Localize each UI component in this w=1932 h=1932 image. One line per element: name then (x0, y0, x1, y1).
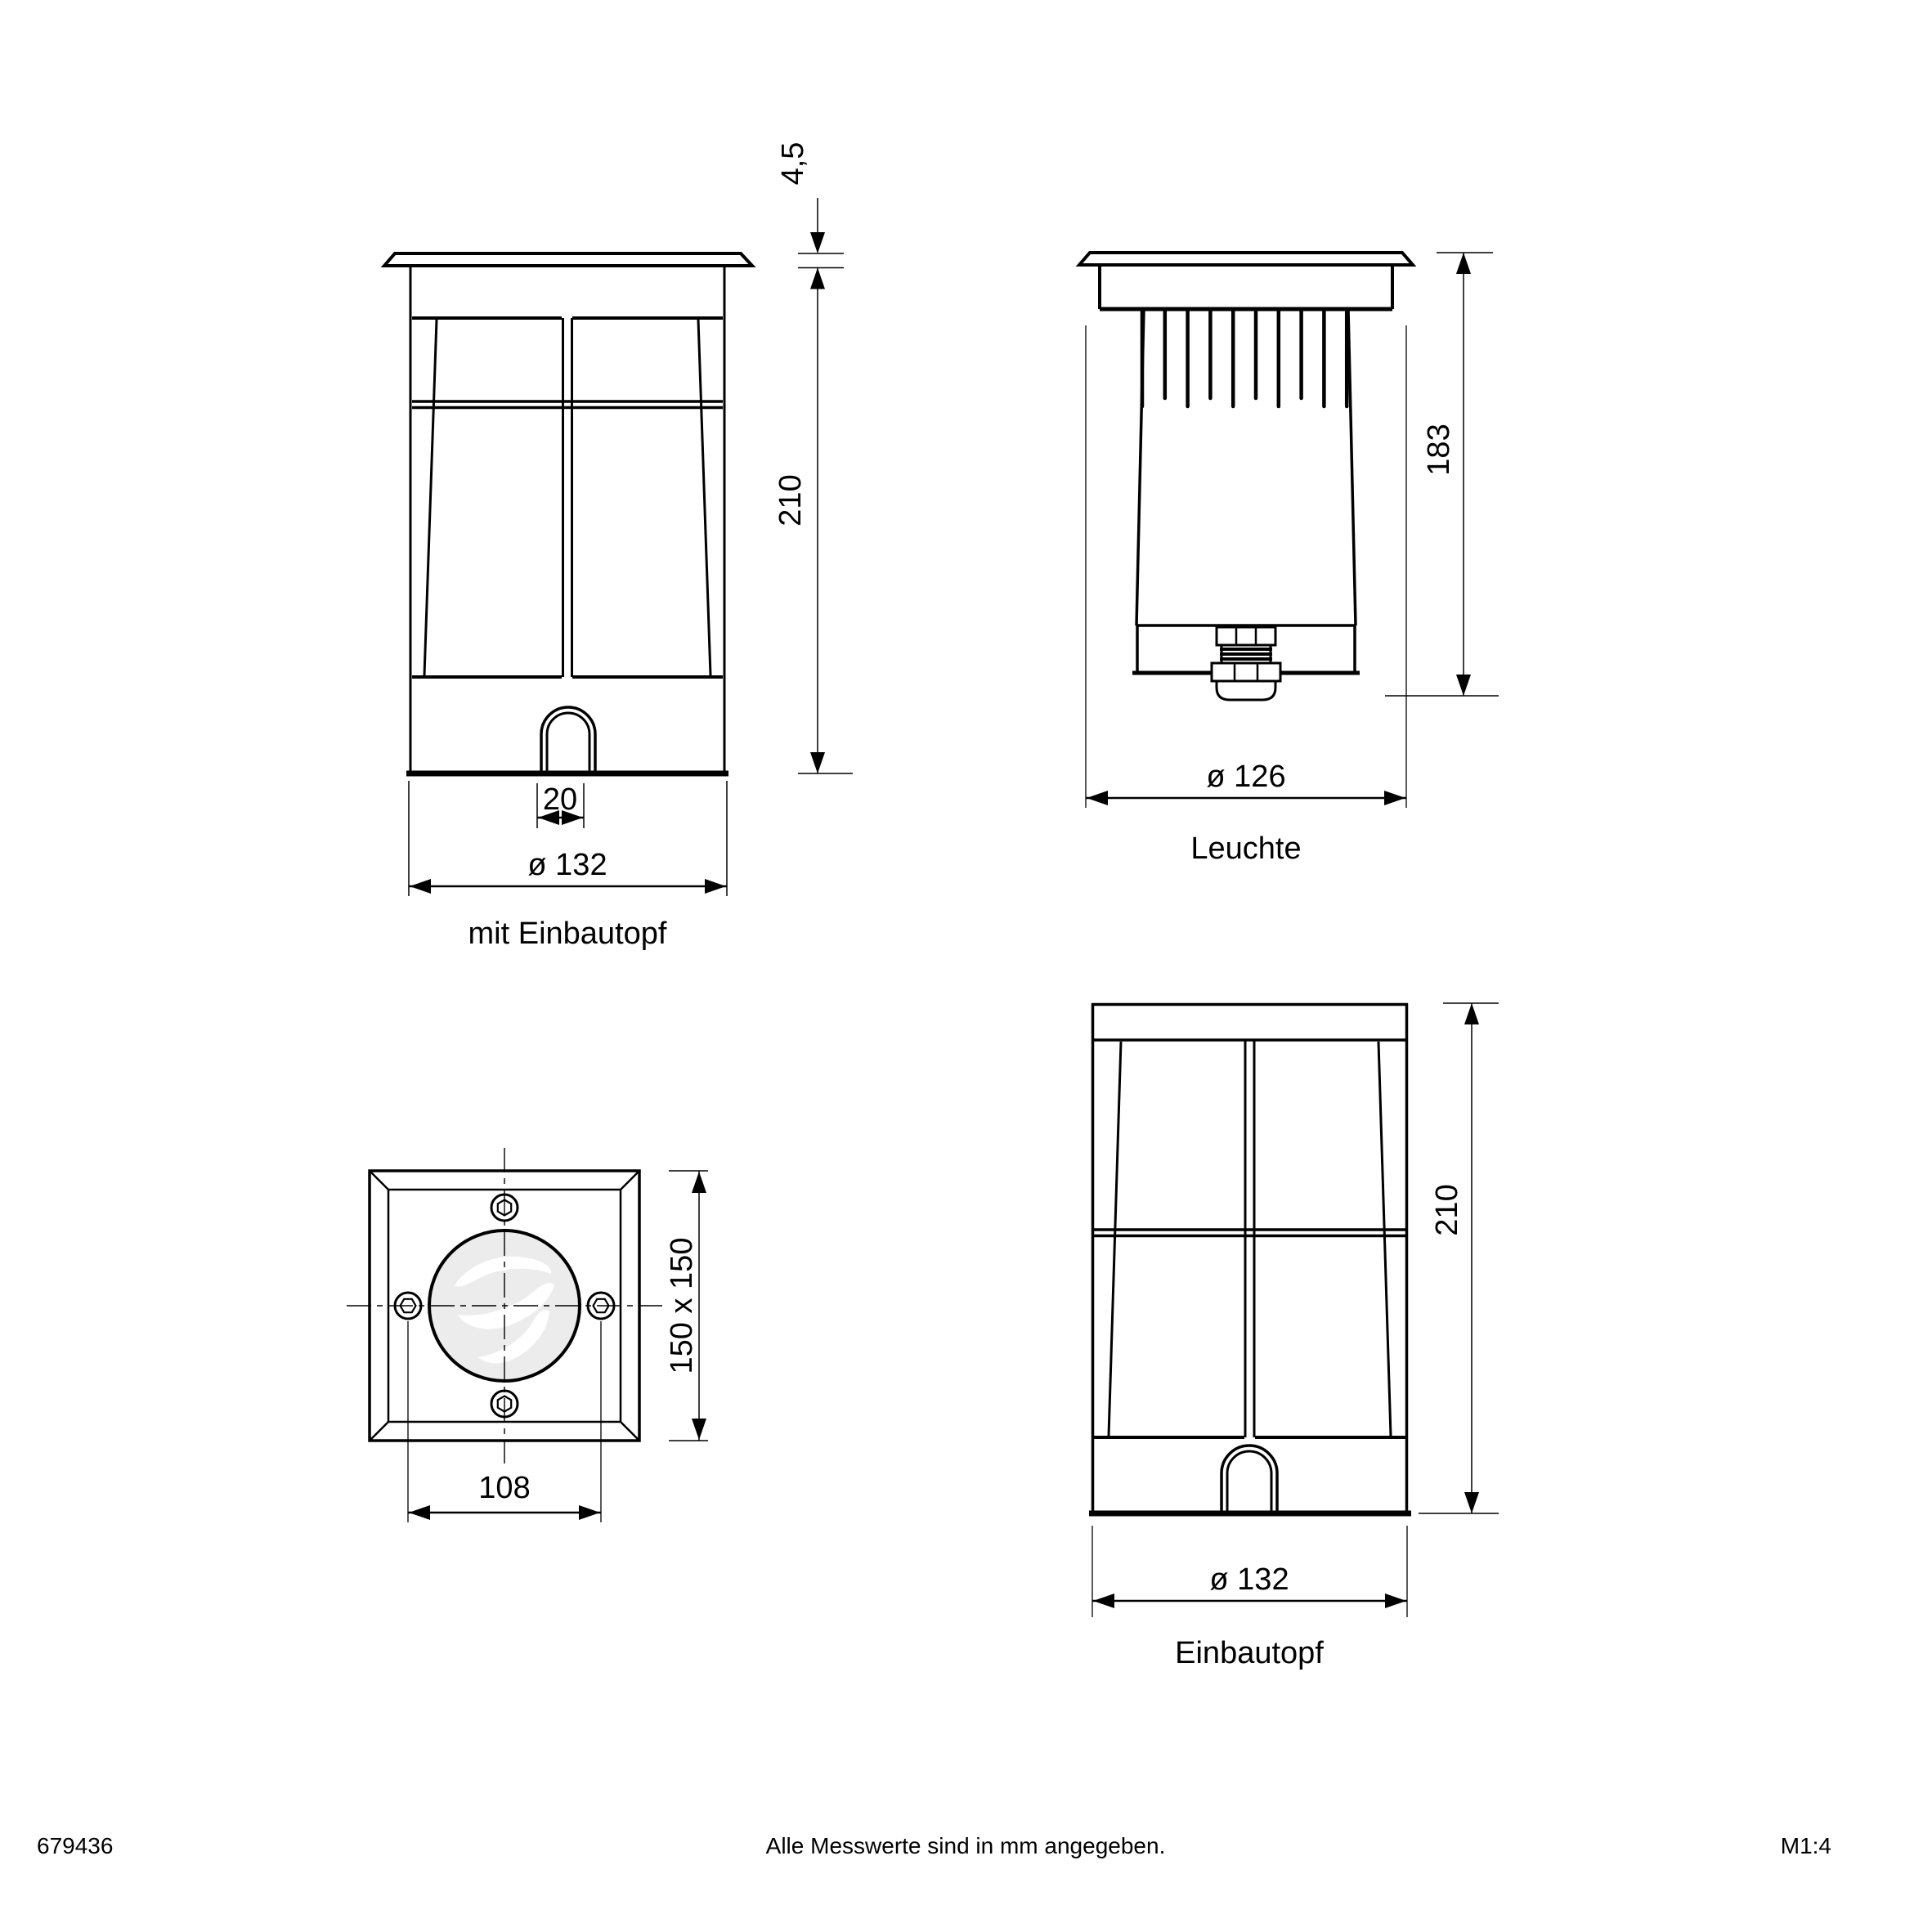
article-number: 679436 (37, 1833, 113, 1858)
dim-text-108: 108 (478, 1471, 530, 1505)
cable-arch-outer (541, 707, 595, 773)
scale-indicator: M1:4 (1781, 1833, 1831, 1858)
dim-text-20: 20 (543, 782, 577, 817)
cable-gland (1212, 627, 1280, 700)
dimension-height-210: 210 (773, 268, 853, 774)
dimension-plate-150x150: 150 x 150 (665, 1171, 708, 1441)
cable-arch-inner (1227, 1451, 1271, 1513)
cable-arch-outer (1222, 1446, 1277, 1513)
dim-text-210: 210 (773, 474, 808, 526)
dim-text-210-pot: 210 (1430, 1184, 1464, 1235)
slant-right (1378, 1042, 1391, 1436)
measurement-note: Alle Messwerte sind in mm angegeben. (766, 1833, 1166, 1858)
top-view: 150 x 150 108 (347, 1148, 708, 1522)
dimension-diameter-132-pot: ø 132 (1092, 1526, 1407, 1617)
bevel-bottom-right (621, 1422, 639, 1441)
dimension-height-183: 183 (1385, 253, 1499, 696)
dim-text-4-5: 4,5 (776, 142, 810, 186)
luminaire-flange (1079, 253, 1413, 265)
bevel-top-right (621, 1171, 639, 1190)
flange-outline (384, 253, 752, 266)
luminaire-view: 183 ø 126 Leuchte (1079, 253, 1499, 866)
cooling-fins (1142, 309, 1347, 406)
dimension-slot-20: 20 (537, 782, 584, 828)
dim-text-183: 183 (1422, 424, 1456, 475)
drawing-canvas: 20 ø 132 4,5 210 mit Einbautopf (0, 0, 1932, 1932)
label-mit-einbautopf: mit Einbautopf (468, 917, 667, 951)
bevel-bottom-left (370, 1422, 388, 1441)
dim-text-150x150: 150 x 150 (665, 1238, 699, 1374)
cable-arch-inner (547, 713, 589, 773)
front-view-with-pot: 20 ø 132 4,5 210 mit Einbautopf (384, 142, 853, 951)
reflector-slant-right (698, 320, 710, 675)
bevel-top-left (370, 1171, 388, 1190)
dimension-height-210-pot: 210 (1419, 1003, 1499, 1513)
body-taper-right (1348, 309, 1356, 625)
dimension-flange-4-5: 4,5 (776, 142, 844, 268)
dim-text-diameter-132: ø 132 (527, 848, 607, 882)
dim-text-diameter-132-pot: ø 132 (1209, 1562, 1289, 1597)
body-taper-left (1136, 309, 1144, 625)
dimension-diameter-126: ø 126 (1086, 760, 1406, 805)
reflector-slant-left (424, 320, 437, 675)
label-einbautopf: Einbautopf (1175, 1636, 1324, 1670)
footer: 679436 Alle Messwerte sind in mm angegeb… (37, 1833, 1831, 1858)
technical-drawing-sheet: 20 ø 132 4,5 210 mit Einbautopf (0, 0, 1932, 1932)
dim-text-diameter-126: ø 126 (1206, 760, 1285, 794)
label-leuchte: Leuchte (1190, 832, 1301, 866)
pot-only-view: 210 ø 132 Einbautopf (1089, 1003, 1499, 1670)
slant-left (1109, 1042, 1121, 1436)
